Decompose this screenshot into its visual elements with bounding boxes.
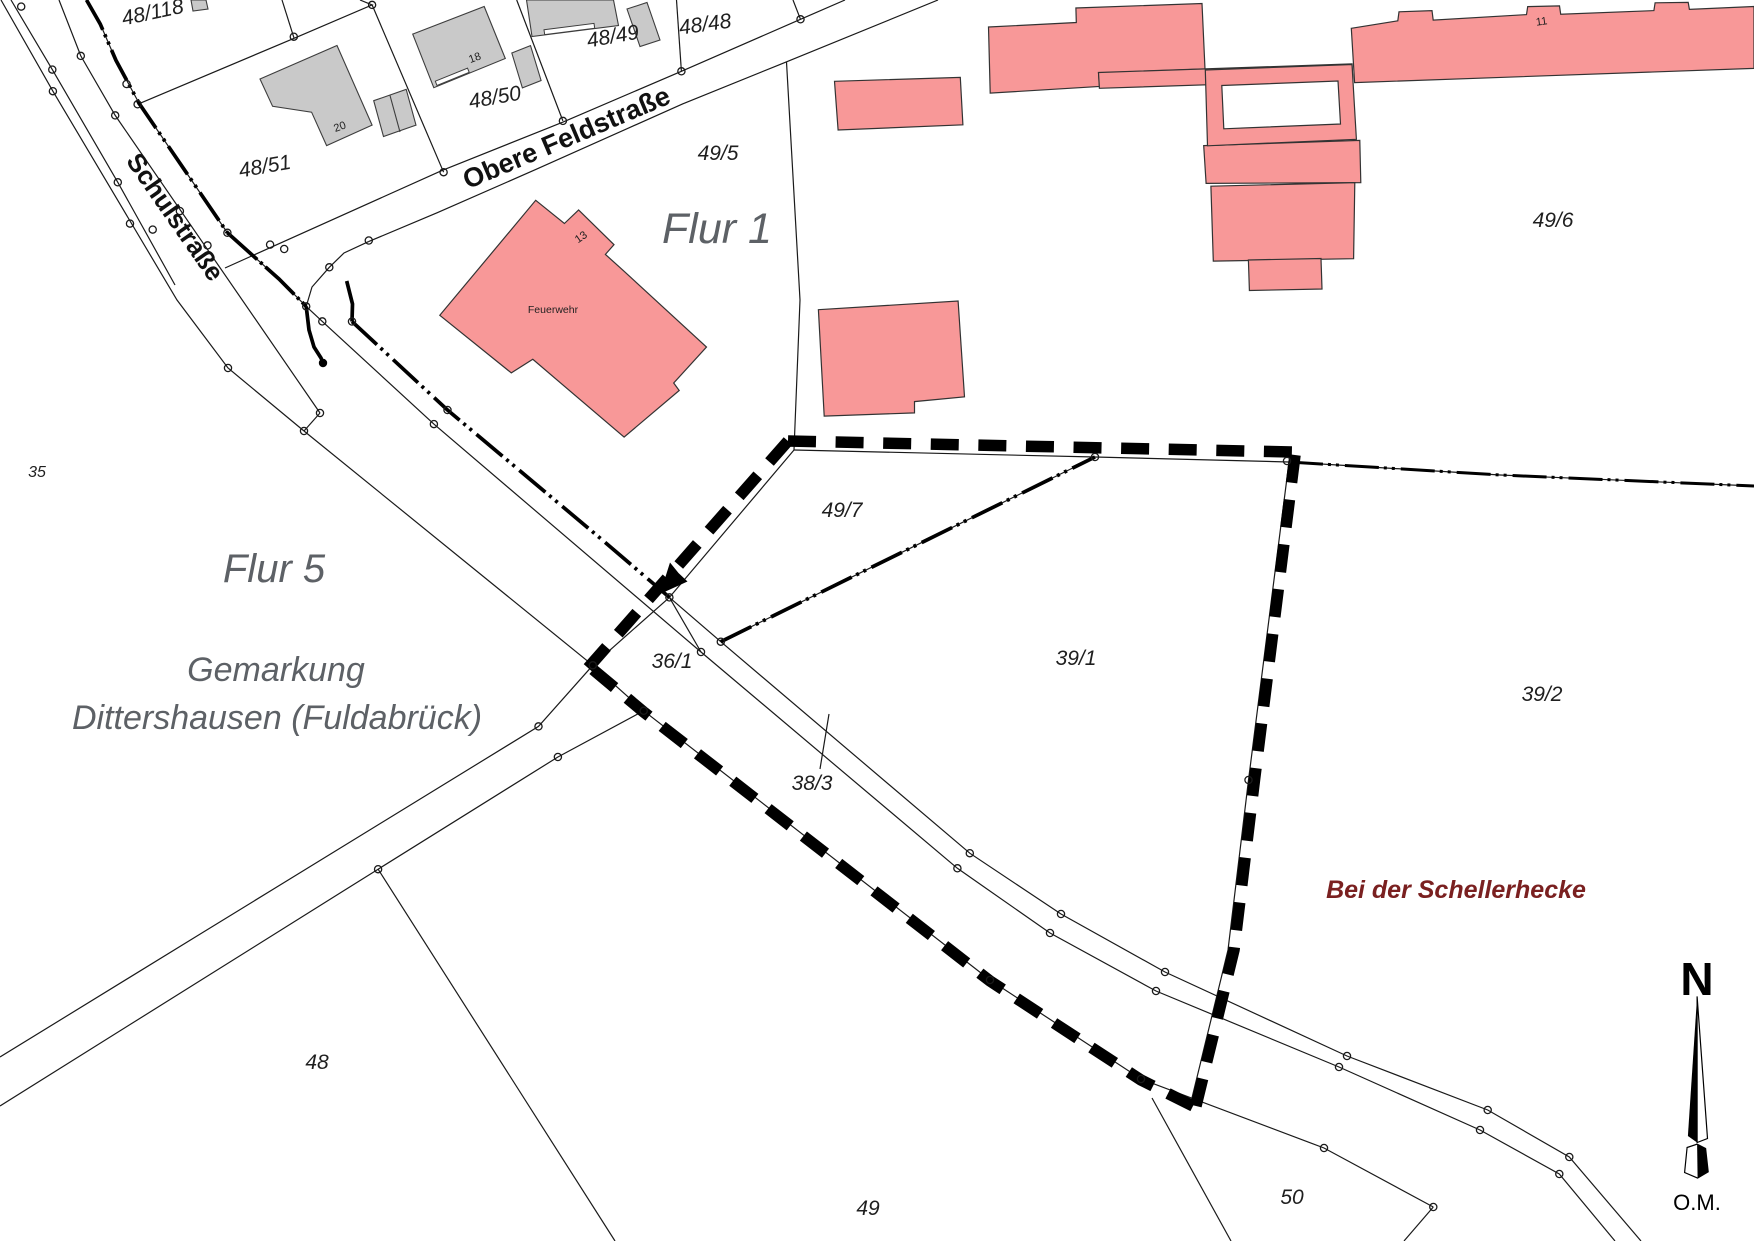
svg-text:49/7: 49/7 (822, 499, 864, 522)
svg-text:49: 49 (856, 1197, 880, 1220)
svg-text:39/2: 39/2 (1522, 683, 1563, 706)
svg-text:35: 35 (28, 464, 46, 481)
svg-text:Bei der Schellerhecke: Bei der Schellerhecke (1326, 876, 1586, 904)
svg-text:38/3: 38/3 (792, 772, 833, 795)
svg-text:49/5: 49/5 (698, 142, 739, 165)
svg-text:11: 11 (1535, 15, 1548, 28)
svg-text:50: 50 (1280, 1186, 1304, 1209)
svg-text:48: 48 (305, 1051, 329, 1074)
svg-text:49/6: 49/6 (1533, 209, 1574, 232)
svg-text:O.M.: O.M. (1673, 1190, 1721, 1215)
svg-text:Gemarkung: Gemarkung (187, 651, 365, 689)
svg-text:39/1: 39/1 (1056, 647, 1097, 670)
svg-text:Flur 5: Flur 5 (223, 547, 326, 591)
svg-text:Dittershausen (Fuldabrück): Dittershausen (Fuldabrück) (72, 699, 482, 737)
svg-text:36/1: 36/1 (652, 650, 693, 673)
svg-text:Feuerwehr: Feuerwehr (528, 304, 579, 316)
svg-text:Flur 1: Flur 1 (662, 205, 772, 253)
